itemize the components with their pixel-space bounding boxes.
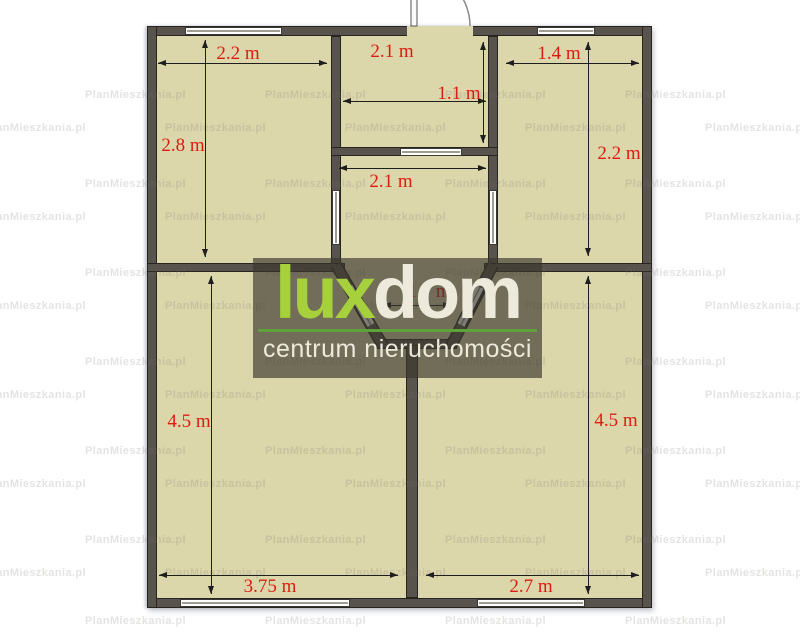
watermark-text: PlanMieszkania.pl — [625, 615, 726, 627]
watermark-text: PlanMieszkania.pl — [0, 567, 86, 579]
watermark-text: PlanMieszkania.pl — [445, 615, 546, 627]
floor-plan-image: PlanMieszkania.plPlanMieszkania.plPlanMi… — [0, 0, 800, 640]
watermark-text: PlanMieszkania.pl — [0, 300, 86, 312]
agency-logo-wordmark: luxdom — [275, 260, 520, 326]
watermark-text: PlanMieszkania.pl — [0, 122, 86, 134]
agency-logo-underline — [258, 329, 537, 332]
window-bottom-right-room — [477, 599, 585, 607]
window-top-left-room — [185, 27, 282, 35]
watermark-text: PlanMieszkania.pl — [0, 389, 86, 401]
agency-logo-overlay: luxdom centrum nieruchomości — [253, 258, 542, 378]
wall-outer-left — [147, 26, 157, 608]
agency-logo-part-dom: dom — [373, 251, 520, 334]
watermark-text: PlanMieszkania.pl — [0, 211, 86, 223]
wall-outer-right — [642, 26, 652, 608]
watermark-text: PlanMieszkania.pl — [705, 567, 800, 579]
watermark-text: PlanMieszkania.pl — [705, 478, 800, 490]
agency-logo-part-lux: lux — [275, 251, 373, 334]
window-bay-right — [489, 190, 497, 245]
window-bottom-left-room — [180, 599, 350, 607]
watermark-text: PlanMieszkania.pl — [705, 211, 800, 223]
watermark-text: PlanMieszkania.pl — [85, 615, 186, 627]
window-top-right-room — [537, 27, 595, 35]
watermark-text: PlanMieszkania.pl — [0, 478, 86, 490]
entrance-door-swing-arc-icon — [414, 0, 470, 26]
window-hall-internal — [400, 148, 462, 156]
wall-bottom-divider — [406, 345, 418, 598]
watermark-text: PlanMieszkania.pl — [705, 300, 800, 312]
window-bay-left — [332, 190, 340, 245]
agency-logo-subtitle: centrum nieruchomości — [263, 334, 532, 364]
watermark-text: PlanMieszkania.pl — [705, 389, 800, 401]
watermark-text: PlanMieszkania.pl — [265, 615, 366, 627]
entrance-door-opening — [407, 26, 473, 36]
watermark-text: PlanMieszkania.pl — [705, 122, 800, 134]
entrance-door-leaf-icon — [411, 0, 417, 26]
